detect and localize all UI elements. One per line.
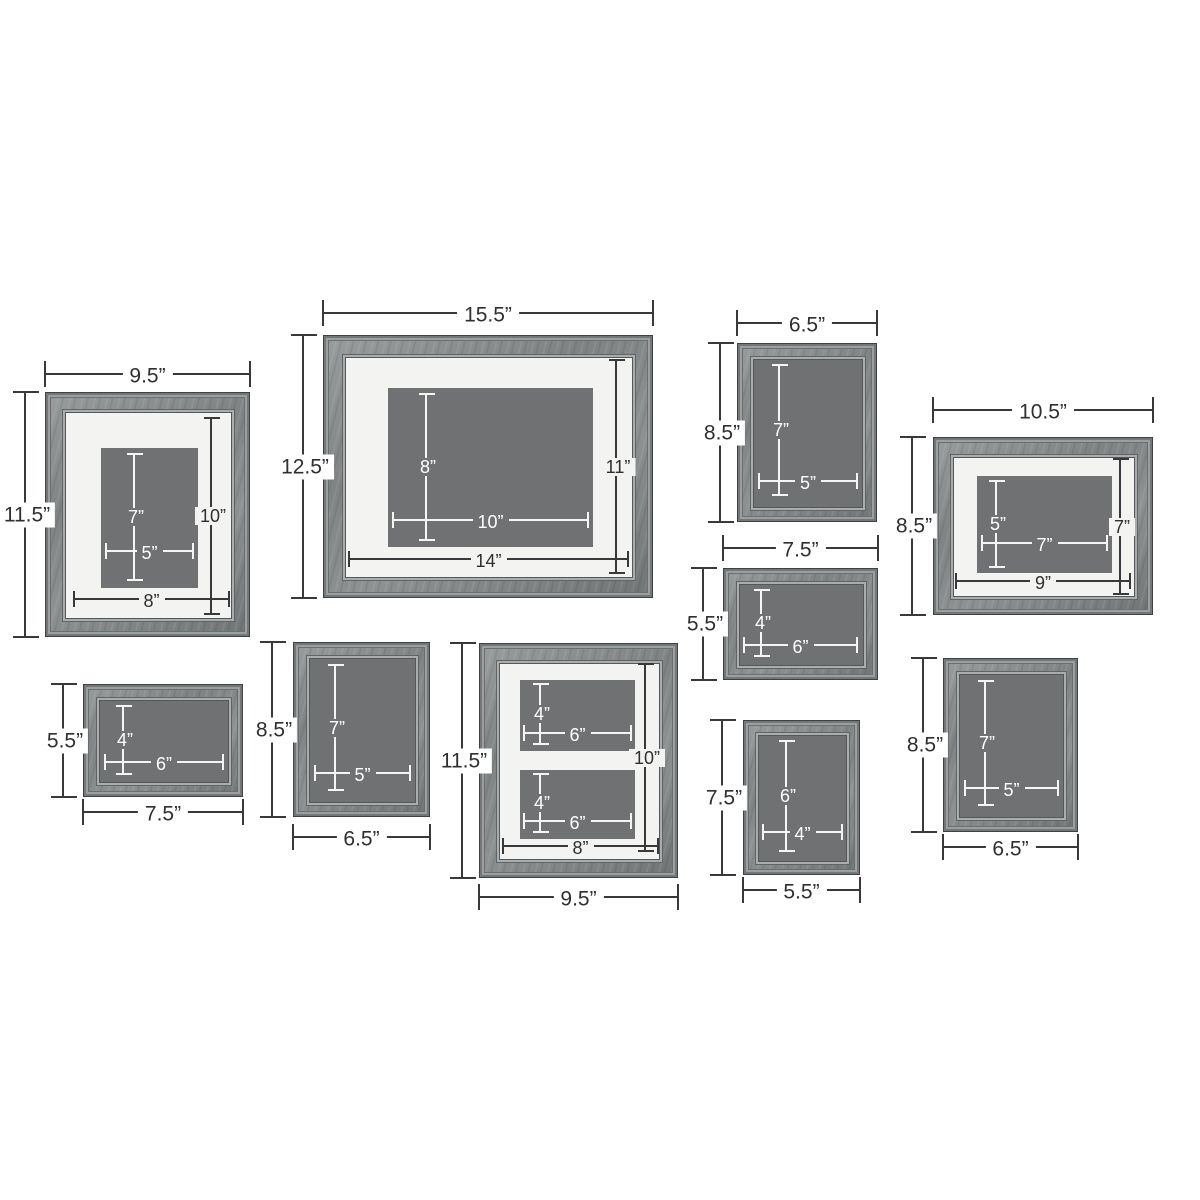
dim-outer-height: 5.5” (702, 568, 704, 680)
dim-outer-height: 7.5” (721, 720, 723, 875)
dim-opening-width: 14” (349, 558, 628, 560)
dim-photo-width: 6” (524, 820, 631, 822)
photo-placeholder-bottom: 4” 6” (520, 770, 635, 839)
dim-outer-height: 12.5” (302, 335, 304, 598)
dim-opening-height: 11” (615, 360, 617, 573)
dim-outer-height: 8.5” (922, 658, 924, 832)
dim-photo-width: 6” (105, 761, 223, 763)
photo-placeholder: 4” 6” (740, 585, 863, 665)
photo-placeholder: 7” 5” (754, 360, 862, 507)
photo-placeholder: 7” 5” (101, 448, 198, 588)
dim-photo-width: 5” (106, 550, 193, 552)
dim-photo-width: 4” (763, 831, 842, 833)
frame-7-5x5-5-left: 4” 6” (83, 684, 243, 797)
frame-10-5x8-5-matted: 5” 7” 9” 7” (933, 437, 1153, 615)
dim-photo-width: 7” (982, 542, 1107, 544)
frame-set-dimension-diagram: 7” 5” 8” 10” 9.5” 11.5” 8” 10” 14” 11” 1… (0, 0, 1200, 1200)
dim-outer-width: 7.5” (83, 811, 243, 813)
dim-photo-width: 5” (759, 480, 857, 482)
frame-7-5x5-5-right: 4” 6” (723, 568, 878, 680)
dim-outer-height: 11.5” (461, 643, 463, 878)
dim-outer-width: 7.5” (723, 547, 878, 549)
mat: 5” 7” 9” 7” (954, 458, 1134, 596)
dim-photo-width: 5” (965, 787, 1058, 789)
dim-opening-width: 8” (503, 845, 658, 847)
dim-opening-width: 8” (74, 598, 229, 600)
dim-outer-width: 6.5” (293, 836, 430, 838)
dim-outer-height: 5.5” (62, 684, 64, 797)
frame-9-5x11-5-matted: 7” 5” 8” 10” (45, 392, 250, 637)
dim-outer-width: 5.5” (743, 889, 860, 891)
frame-9-5x11-5-collage: 4” 6” 4” 6” 8” 10” (479, 643, 678, 878)
dim-photo-height: 7” (778, 365, 780, 495)
dim-photo-width: 6” (744, 644, 857, 646)
dim-outer-width: 15.5” (323, 312, 653, 314)
photo-placeholder: 6” 4” (759, 736, 846, 861)
frame-5-5x7-5: 6” 4” (743, 720, 860, 875)
dim-photo-height: 5” (995, 481, 997, 567)
mat: 4” 6” 4” 6” 8” 10” (500, 664, 659, 859)
dim-photo-height: 7” (133, 454, 135, 580)
dim-photo-width: 5” (315, 772, 410, 774)
frame-6-5x8-5-top: 7” 5” (737, 343, 877, 522)
frame-15-5x12-5-matted: 8” 10” 14” 11” (323, 335, 653, 598)
dim-opening-width: 9” (956, 580, 1130, 582)
dim-outer-width: 9.5” (479, 896, 678, 898)
photo-placeholder: 7” 5” (960, 675, 1063, 817)
dim-photo-height: 6” (785, 741, 787, 851)
photo-placeholder: 4” 6” (100, 701, 228, 782)
dim-outer-width: 10.5” (933, 409, 1153, 411)
dim-opening-height: 7” (1119, 459, 1121, 594)
dim-photo-height: 4” (122, 706, 124, 774)
dim-outer-width: 9.5” (45, 373, 250, 375)
dim-opening-height: 10” (644, 664, 646, 851)
dim-photo-width: 6” (524, 732, 631, 734)
mat: 8” 10” 14” 11” (346, 358, 632, 577)
dim-outer-height: 8.5” (719, 343, 721, 522)
dim-outer-width: 6.5” (943, 846, 1078, 848)
dim-opening-height: 10” (210, 418, 212, 614)
photo-placeholder: 8” 10” (388, 388, 593, 547)
dim-outer-width: 6.5” (737, 322, 877, 324)
dim-photo-height: 4” (539, 774, 541, 832)
dim-photo-height: 4” (760, 590, 762, 656)
dim-outer-height: 8.5” (271, 642, 273, 817)
mat: 7” 5” 8” 10” (66, 413, 231, 618)
photo-placeholder: 7” 5” (310, 659, 415, 802)
photo-placeholder: 5” 7” (977, 476, 1112, 573)
dim-outer-height: 8.5” (911, 437, 913, 615)
dim-photo-height: 4” (539, 684, 541, 744)
dim-photo-width: 10” (393, 519, 588, 521)
photo-placeholder-top: 4” 6” (520, 680, 635, 751)
frame-6-5x8-5-bottom-left: 7” 5” (293, 642, 430, 817)
frame-6-5x8-5-bottom-right: 7” 5” (943, 658, 1078, 832)
dim-outer-height: 11.5” (24, 392, 26, 637)
